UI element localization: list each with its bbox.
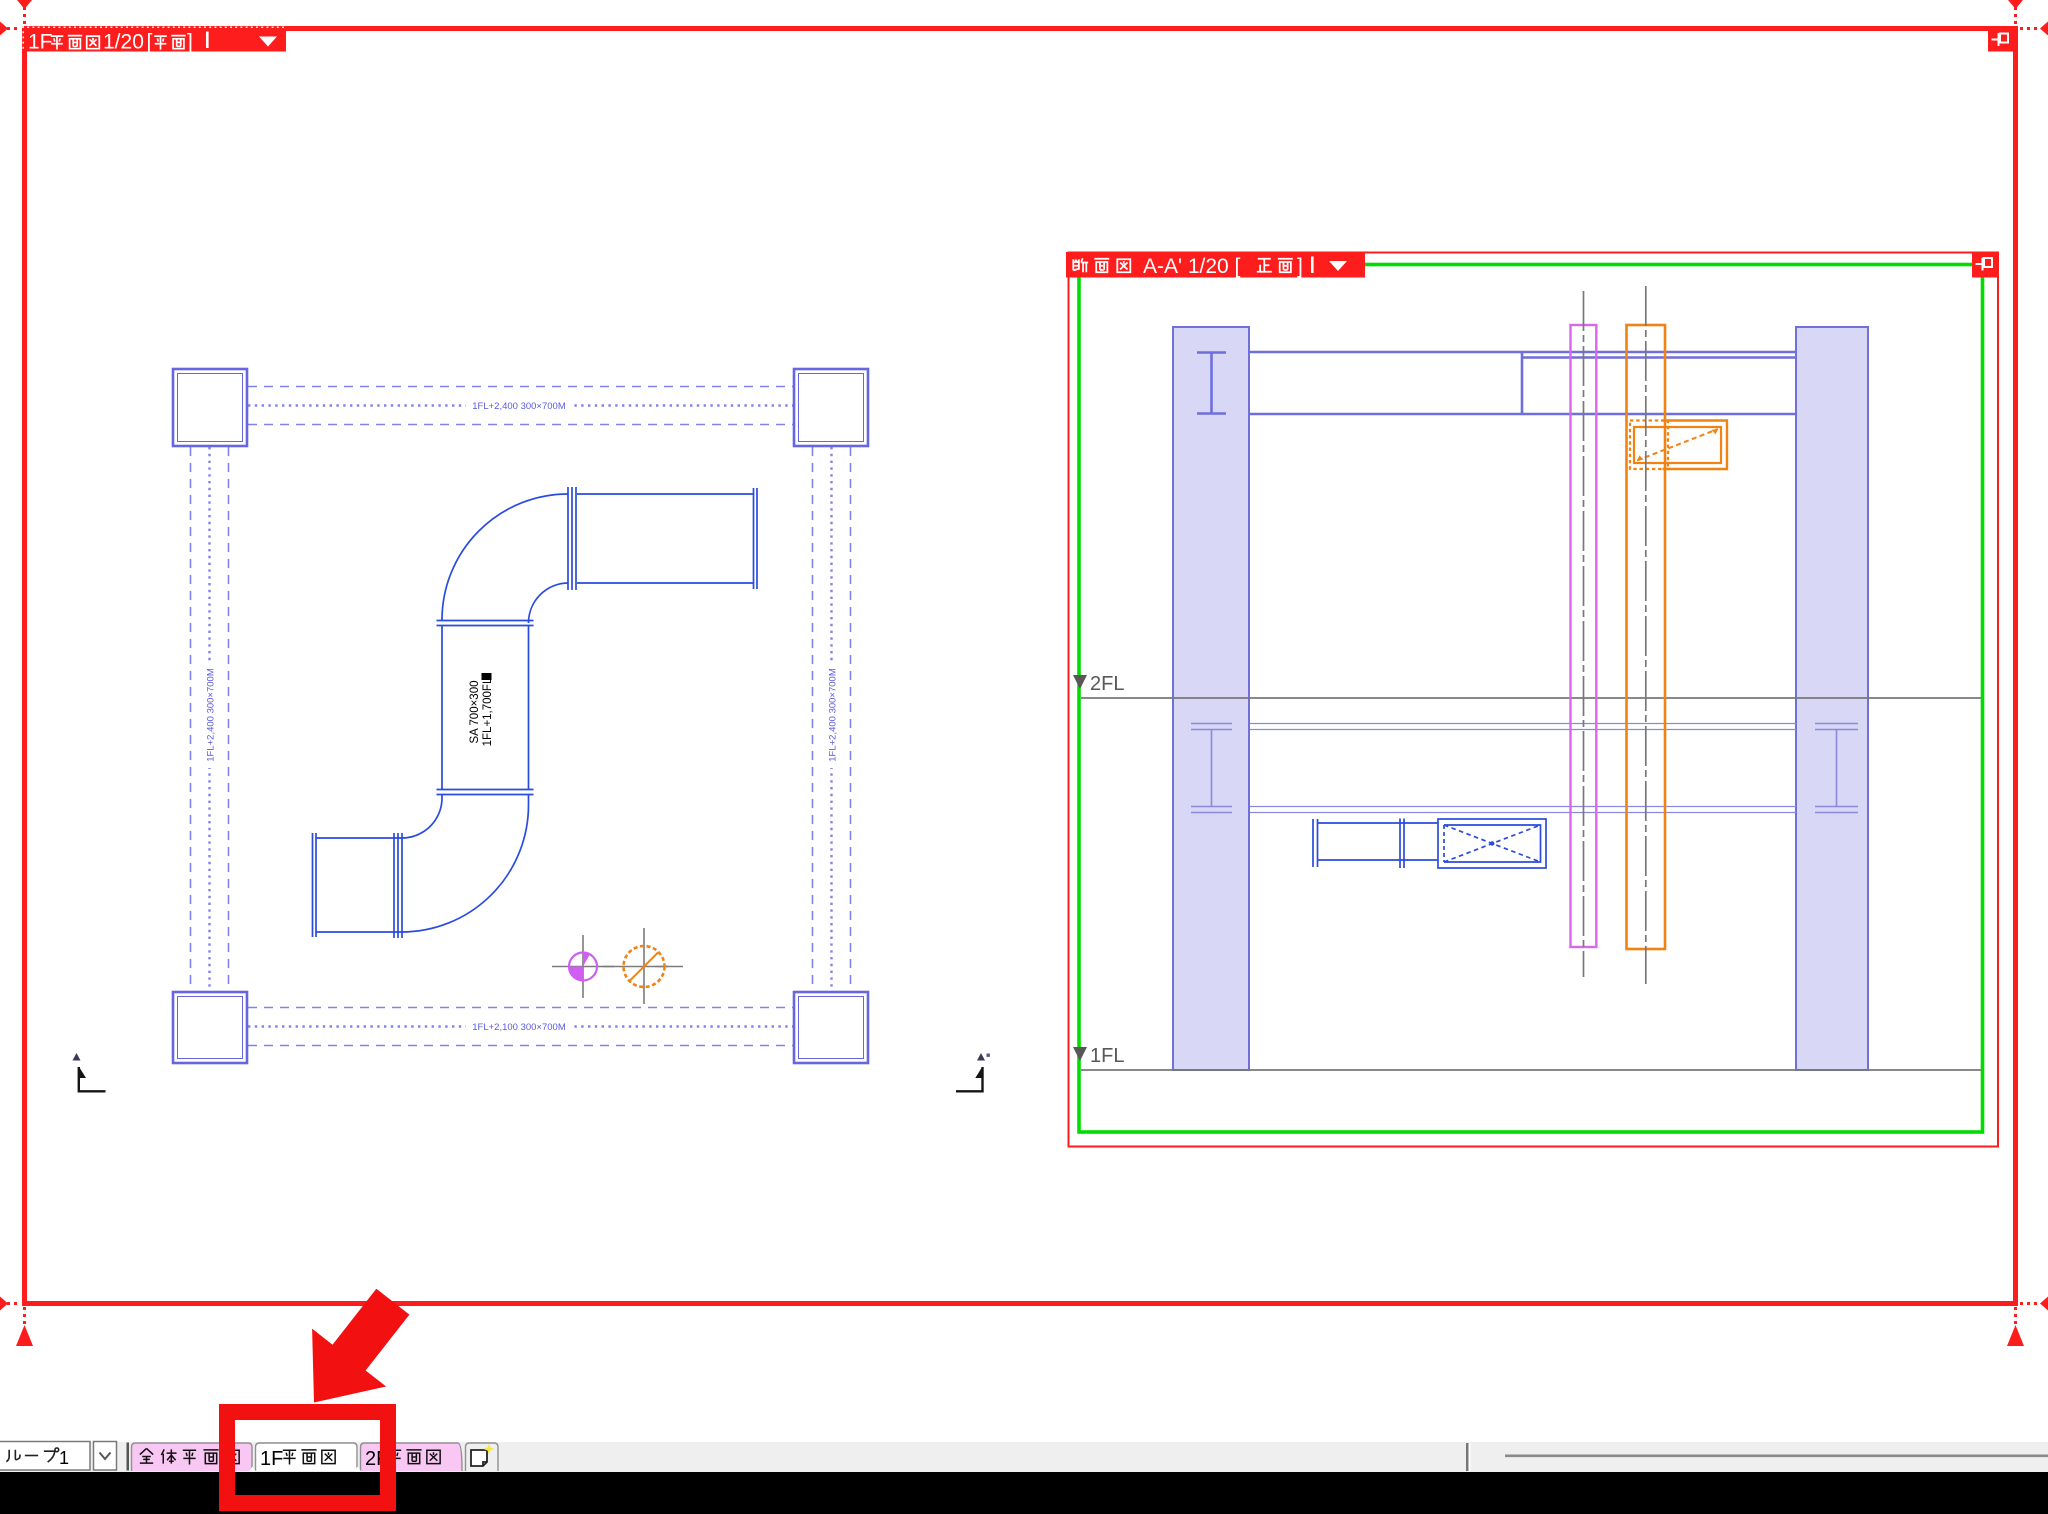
svg-text:1F: 1F: [260, 1448, 283, 1470]
svg-text:1FL+2,100 300×700M: 1FL+2,100 300×700M: [472, 1022, 566, 1033]
svg-text:1F: 1F: [28, 31, 53, 54]
svg-text:1FL: 1FL: [1090, 1045, 1124, 1067]
svg-text:1: 1: [59, 1448, 69, 1468]
svg-text:1FL+2,400 300×700M: 1FL+2,400 300×700M: [828, 668, 839, 762]
svg-text:[: [: [147, 31, 153, 54]
svg-text:1FL+1,700FL: 1FL+1,700FL: [482, 677, 494, 746]
svg-text:]: ]: [187, 31, 193, 54]
svg-text:1FL+2,400 300×700M: 1FL+2,400 300×700M: [472, 401, 566, 412]
svg-text:]: ]: [1297, 255, 1303, 278]
svg-text:A-A' 1/20 [: A-A' 1/20 [: [1143, 255, 1241, 278]
svg-text:1FL+2,400 300×700M: 1FL+2,400 300×700M: [206, 668, 217, 762]
svg-text:1/20: 1/20: [103, 31, 144, 54]
svg-text:2FL: 2FL: [1090, 673, 1124, 695]
svg-text:SA 700×300: SA 700×300: [469, 681, 481, 744]
